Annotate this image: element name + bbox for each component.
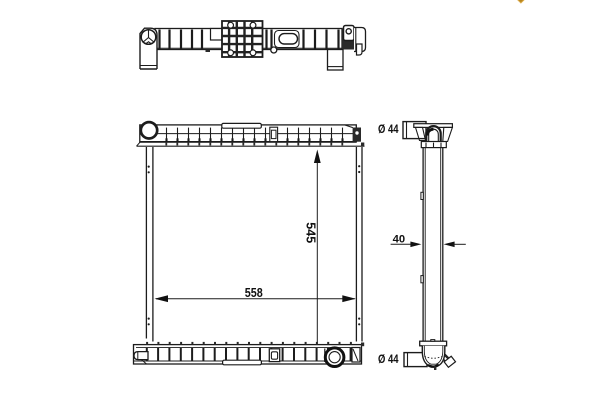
svg-text:558: 558 bbox=[245, 286, 263, 300]
svg-text:Ø 44: Ø 44 bbox=[378, 354, 399, 366]
svg-text:545: 545 bbox=[303, 222, 317, 243]
svg-text:Ø 44: Ø 44 bbox=[378, 124, 399, 136]
